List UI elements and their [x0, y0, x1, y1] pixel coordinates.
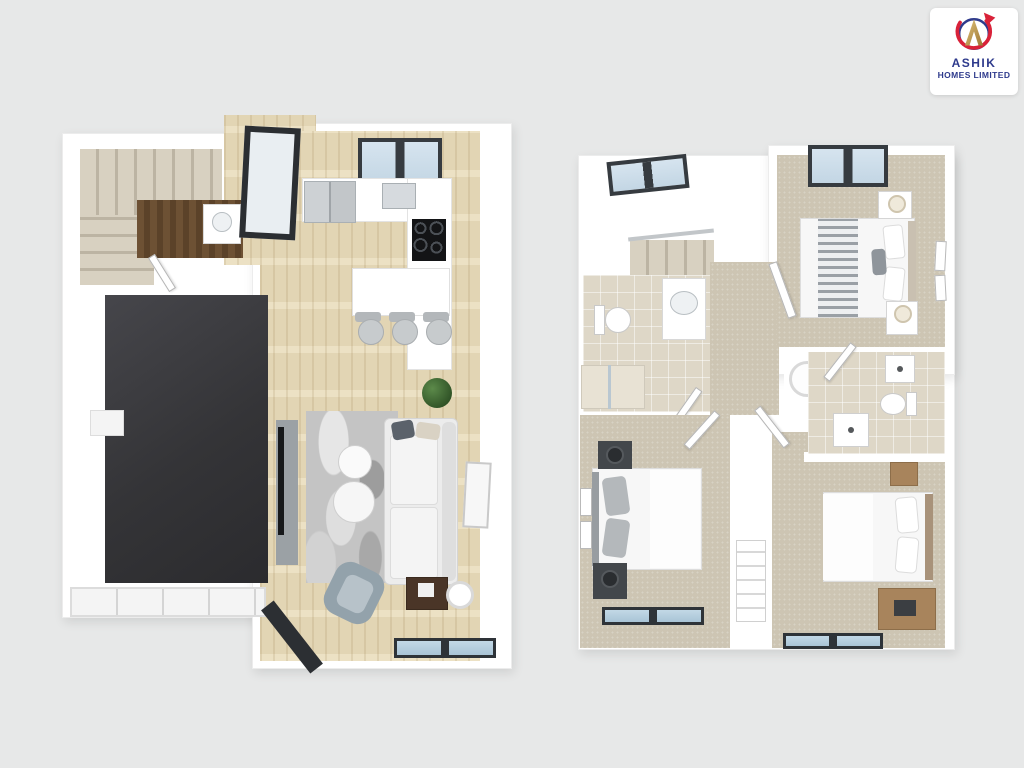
- gf-garage-door: [70, 587, 266, 617]
- ff-shower-glass: [608, 365, 611, 409]
- ff-closet-shelves: [736, 540, 766, 622]
- gf-garage-floor: [105, 295, 268, 583]
- gf-coffee-table-1: [338, 445, 372, 479]
- ff-turntable-b: [601, 570, 619, 588]
- gf-island: [352, 268, 450, 316]
- ff-laptop-b3: [894, 600, 916, 616]
- ff-frame-m1: [934, 241, 947, 272]
- logo-text-line2: HOMES LIMITED: [938, 70, 1011, 81]
- gf-living-window: [394, 638, 496, 658]
- ff-toilet-bowl-1: [605, 307, 631, 333]
- ff-bed3-headboard: [925, 494, 933, 580]
- ff-toilet-bowl-2: [880, 393, 906, 415]
- gf-kitchen-sink: [382, 183, 416, 209]
- gf-sofa-pillow-beige: [415, 421, 441, 440]
- gf-sofa-seat-2: [390, 507, 438, 579]
- ff-bath-sink: [670, 291, 698, 315]
- gf-sofa-seat-1: [390, 435, 438, 505]
- ff-nightstand-b3: [890, 462, 918, 486]
- ff-bed2-fold: [650, 470, 700, 568]
- gf-tv: [278, 427, 284, 535]
- gf-sofa-back: [442, 422, 456, 581]
- scene: ASHIK HOMES LIMITED: [0, 0, 1024, 768]
- gf-cooktop: [412, 219, 446, 261]
- ff-shower-drain-b: [848, 427, 854, 433]
- ff-bed3-fold: [823, 494, 873, 580]
- gf-stool-seat-2: [392, 319, 418, 345]
- ff-frame-b2b: [580, 521, 592, 549]
- logo-monogram: [965, 19, 983, 45]
- gf-wall-art: [462, 461, 491, 528]
- gf-coffee-table-2: [333, 481, 375, 523]
- ff-stairs: [630, 240, 714, 278]
- gf-entry-door: [239, 126, 301, 241]
- ff-hall-carpet: [710, 262, 779, 415]
- ff-turntable-a: [606, 446, 624, 464]
- ff-lamp-m2: [894, 305, 912, 323]
- logo-card: ASHIK HOMES LIMITED: [930, 8, 1018, 95]
- gf-cabinet-art: [418, 583, 434, 597]
- gf-floor-lamp: [446, 581, 474, 609]
- gf-plant: [422, 378, 452, 408]
- ff-bed2-pillow-1: [601, 476, 630, 517]
- logo-icon: [949, 11, 999, 57]
- ff-toilet-tank-2: [906, 392, 917, 416]
- first-floor-plan: [578, 145, 955, 650]
- gf-fridge: [304, 181, 356, 223]
- ff-bed3-window: [783, 633, 883, 649]
- ff-lamp-m1: [888, 195, 906, 213]
- gf-stool-seat-3: [426, 319, 452, 345]
- gf-sofa-pillow-dark: [391, 419, 416, 441]
- gf-stool-seat-1: [358, 319, 384, 345]
- ff-bed3-pillow-2: [894, 536, 919, 574]
- logo-text-line1: ASHIK: [952, 57, 997, 70]
- ground-floor-plan: [62, 115, 512, 670]
- gf-wc-sink: [212, 212, 232, 232]
- ff-bed3-pillow-1: [894, 496, 919, 534]
- gf-garage-shelf: [90, 410, 124, 436]
- ff-bed2-headboard: [592, 472, 599, 566]
- ff-master-pillow-1: [882, 224, 905, 260]
- ff-shower: [581, 365, 645, 409]
- ff-bed2-window: [602, 607, 704, 625]
- ff-frame-b2a: [580, 488, 592, 516]
- ff-frame-m2: [934, 275, 946, 302]
- ff-ensuite-floor: [808, 352, 945, 454]
- ff-master-cushion: [871, 249, 887, 276]
- ff-shower-drain-a: [897, 366, 903, 372]
- ff-master-bed-stripes: [818, 219, 858, 317]
- ff-toilet-tank-1: [594, 305, 605, 335]
- ff-master-skylight: [808, 145, 888, 187]
